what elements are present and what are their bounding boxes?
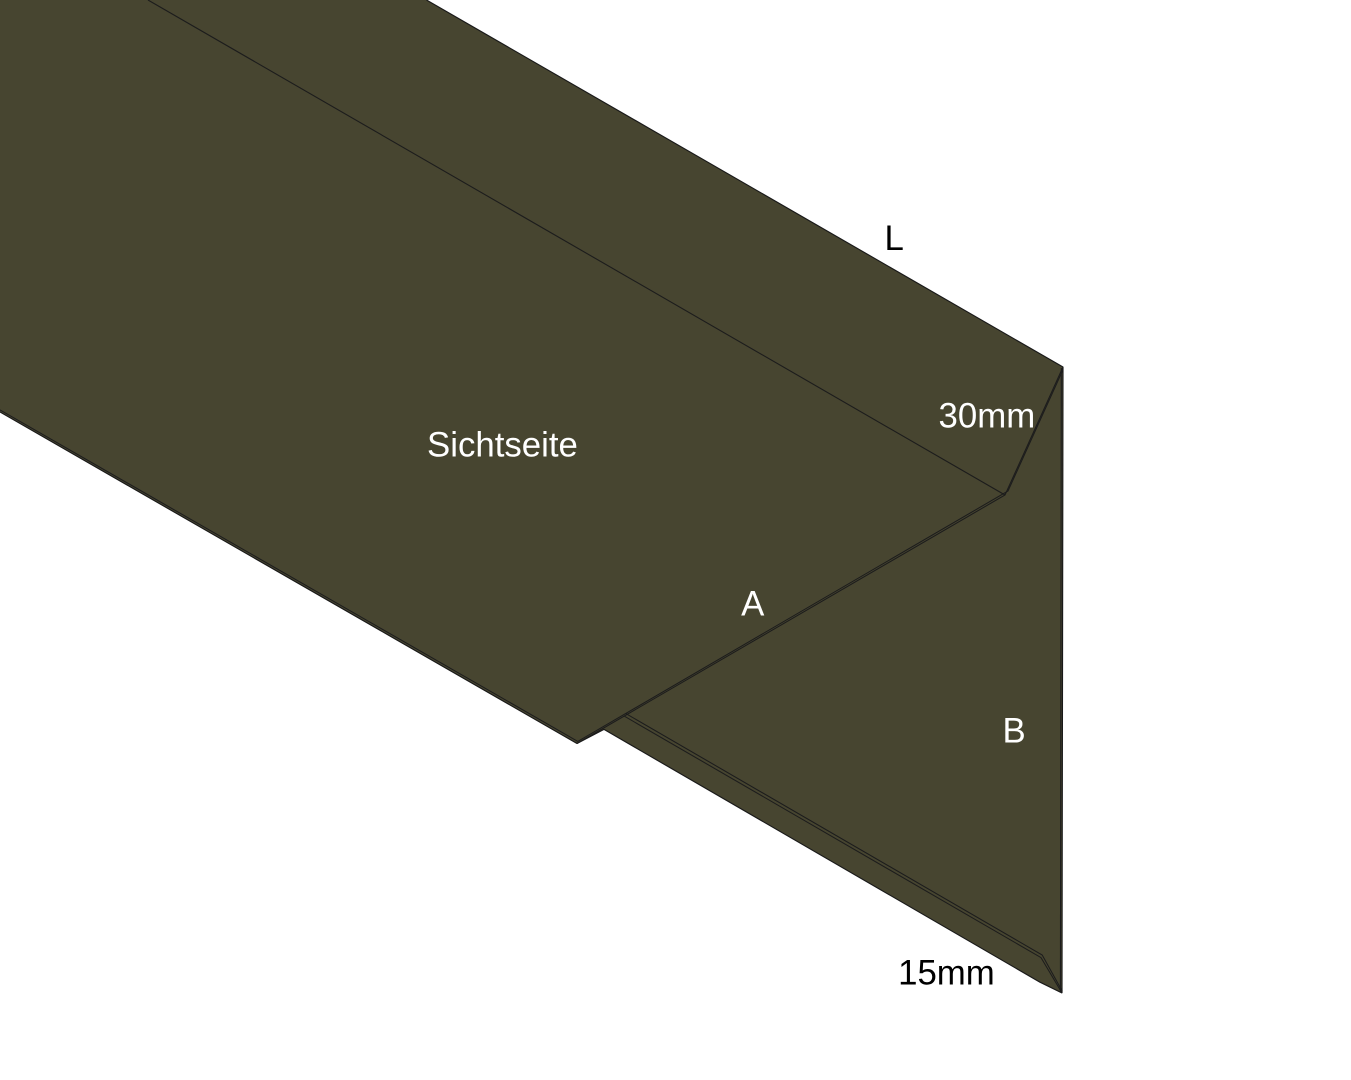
svg-text:A: A — [741, 585, 765, 624]
svg-text:30mm: 30mm — [939, 397, 1036, 436]
svg-text:B: B — [1003, 712, 1026, 751]
svg-text:Sichtseite: Sichtseite — [427, 426, 578, 465]
svg-text:L: L — [885, 219, 904, 258]
svg-text:15mm: 15mm — [898, 953, 995, 992]
